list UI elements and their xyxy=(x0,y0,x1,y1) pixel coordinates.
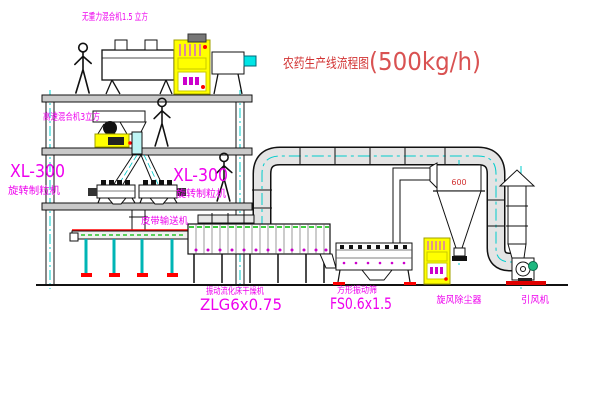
granulator-right-model-label: XL-300 xyxy=(173,165,228,186)
diagram-title: 农药生产线流程图 xyxy=(283,56,369,72)
floor-slab-1 xyxy=(42,95,252,102)
cabinet2-indicator-light xyxy=(444,277,448,281)
sieve-body xyxy=(336,243,412,270)
control-cabinet-1 xyxy=(174,34,210,94)
granulator-right-body xyxy=(139,185,177,198)
cad-flow-diagram: 600 无重力混合机1.5 立方 高速混合机3立方 XL-300 旋转制粒机 X… xyxy=(0,0,600,403)
granulator-left-motor xyxy=(88,188,97,196)
floor-slab-3 xyxy=(42,203,252,210)
floor-slab-2 xyxy=(42,148,252,155)
cyclone-size-label: 600 xyxy=(451,178,466,187)
mixer-body xyxy=(102,50,174,80)
cyclone-airlock xyxy=(452,256,467,261)
rotary-granulator-left xyxy=(88,180,135,204)
cabinet-indicator-light xyxy=(203,45,207,49)
fan-motor xyxy=(529,262,538,271)
mixer2-discharge-chute xyxy=(132,132,142,154)
person-floor-2 xyxy=(154,98,170,146)
cyclone-name-label: 旋风除尘器 xyxy=(437,294,482,306)
mixer2-motor xyxy=(108,137,124,145)
diagram-title-capacity: (500kg/h) xyxy=(369,47,481,76)
stack-tube xyxy=(508,186,526,244)
dryer-legs xyxy=(194,254,324,283)
cabinet-vent xyxy=(188,34,206,42)
belt-conveyor-label: 皮带输送机 xyxy=(141,215,188,227)
induced-draft-fan xyxy=(506,258,546,285)
vibrating-sieve xyxy=(333,243,416,285)
sieve-dust-duct xyxy=(393,168,430,243)
sieve-model-label: FS0.6x1.5 xyxy=(330,294,392,313)
fluid-bed-dryer xyxy=(188,224,336,283)
top-mixer-label: 无重力混合机1.5 立方 xyxy=(82,11,148,23)
mixer-inlet-hopper-2 xyxy=(145,40,157,50)
conveyor-drive xyxy=(70,233,78,241)
granulator-left-name-label: 旋转制粒机 xyxy=(8,184,60,197)
conveyor-foot-pads xyxy=(81,273,178,277)
cabinet-indicator-light-2 xyxy=(201,85,205,89)
conveyor-legs xyxy=(86,239,172,273)
dryer-outlet-chute xyxy=(320,254,336,268)
fan-base xyxy=(506,281,546,285)
mixer-inlet-hopper-1 xyxy=(115,40,127,50)
mid-mixer-label: 高速混合机3立方 xyxy=(43,111,100,123)
cyclone-outlet xyxy=(454,248,465,256)
fan-name-label: 引风机 xyxy=(521,294,549,306)
belt-conveyor xyxy=(70,230,188,277)
dryer-model-label: ZLG6x0.75 xyxy=(200,295,282,314)
sieve-hopper xyxy=(362,270,392,280)
mixer-drive-unit xyxy=(212,52,244,74)
diagram-canvas: 600 无重力混合机1.5 立方 高速混合机3立方 XL-300 旋转制粒机 X… xyxy=(0,0,600,403)
control-cabinet-2 xyxy=(424,238,450,284)
granulator-left-model-label: XL-300 xyxy=(10,161,65,182)
cyclone-inlet-taper xyxy=(430,163,437,188)
mixer-coupling xyxy=(244,56,256,66)
granulator-right-name-label: 旋转制粒机 xyxy=(176,187,226,200)
granulator-left-body xyxy=(97,185,135,198)
person-top-floor xyxy=(75,43,91,93)
mixer2-top xyxy=(93,111,145,122)
